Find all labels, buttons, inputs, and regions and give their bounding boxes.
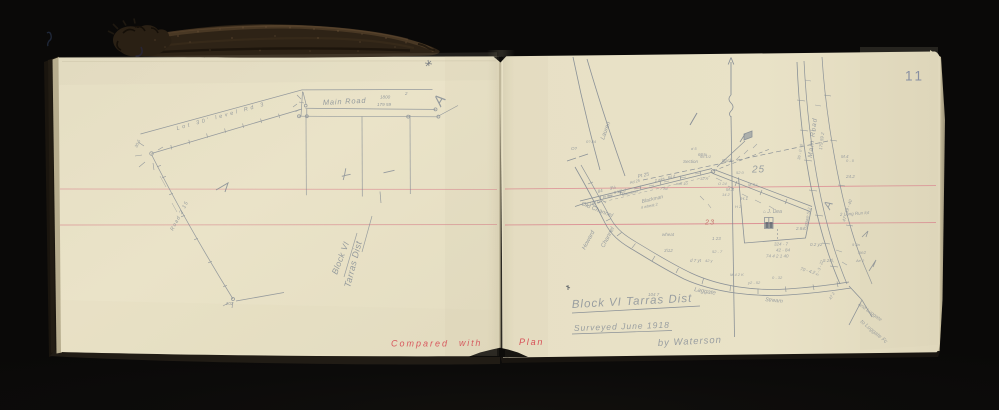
svg-text:1 23: 1 23: [712, 236, 721, 241]
svg-text:0.2 y2: 0.2 y2: [810, 242, 823, 247]
svg-text:5 24\,: 5 24\,: [823, 258, 834, 263]
svg-text:52 0: 52 0: [736, 170, 745, 175]
svg-text:74 4 2 1 40: 74 4 2 1 40: [766, 254, 789, 259]
svg-text:H 2: H 2: [735, 204, 742, 209]
svg-text:2: 2: [404, 91, 408, 96]
svg-text:23: 23: [704, 220, 715, 227]
svg-text:d 7 yt: d 7 yt: [690, 258, 702, 263]
svg-text:66 1/2: 66 1/2: [700, 154, 712, 159]
svg-text:0? 84: 0? 84: [586, 139, 597, 144]
svg-text:O 24: O 24: [718, 181, 727, 186]
svg-text:⌂ J. Dea: ⌂ J. Dea: [763, 209, 782, 215]
svg-text:1800: 1800: [380, 95, 391, 100]
svg-text:324 - 7: 324 - 7: [774, 242, 789, 247]
svg-text:Section: Section: [683, 159, 699, 164]
svg-text:mill 10: mill 10: [676, 181, 688, 186]
svg-text:9 2a: 9 2a: [852, 242, 861, 247]
svg-text:7 84: 7 84: [660, 186, 669, 191]
svg-text:d 5: d 5: [691, 146, 697, 151]
svg-text:Back: Back: [722, 158, 733, 163]
svg-text:O?: O?: [571, 146, 578, 151]
svg-text:M.S.L: M.S.L: [748, 182, 758, 187]
svg-text:179 59: 179 59: [377, 102, 391, 107]
svg-text:y2 - 52: y2 - 52: [747, 280, 761, 285]
svg-text:25: 25: [751, 165, 765, 176]
svg-text:42 y: 42 y: [705, 258, 714, 263]
svg-text:14 2: 14 2: [722, 192, 731, 197]
svg-text:24.2: 24.2: [845, 174, 855, 179]
svg-text:wheat: wheat: [662, 232, 675, 237]
svg-text:0 - 32: 0 - 32: [772, 275, 783, 280]
svg-text:32 R: 32 R: [700, 176, 709, 181]
svg-text:42 - 84: 42 - 84: [776, 248, 791, 253]
svg-text:M 4 2 K: M 4 2 K: [730, 272, 744, 277]
svg-text:52 - 7: 52 - 7: [712, 249, 723, 254]
svg-text:3\12: 3\12: [664, 248, 673, 253]
svg-text:0 - 0: 0 - 0: [846, 158, 855, 163]
